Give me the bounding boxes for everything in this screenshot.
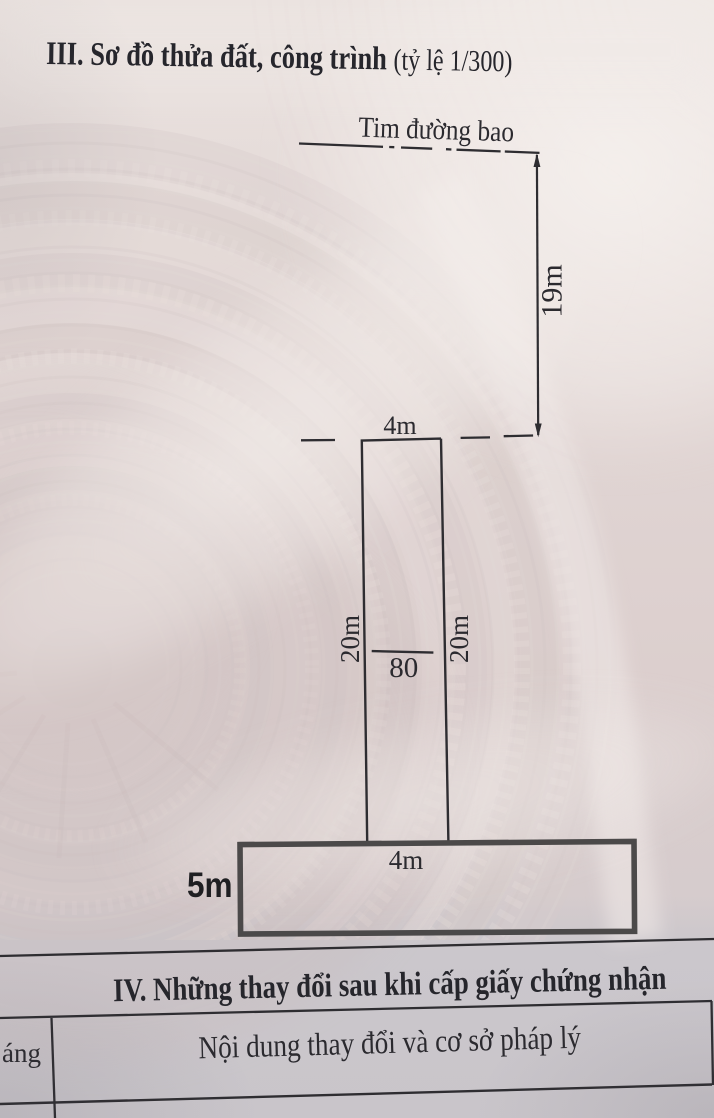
- svg-text:19m: 19m: [536, 264, 569, 317]
- svg-text:20m: 20m: [444, 615, 474, 663]
- svg-text:4m: 4m: [389, 845, 424, 875]
- svg-text:5m: 5m: [187, 867, 233, 906]
- svg-text:Tim đường bao: Tim đường bao: [358, 111, 515, 148]
- svg-text:4m: 4m: [383, 411, 416, 440]
- svg-text:20m: 20m: [335, 615, 365, 663]
- svg-text:80: 80: [389, 652, 418, 684]
